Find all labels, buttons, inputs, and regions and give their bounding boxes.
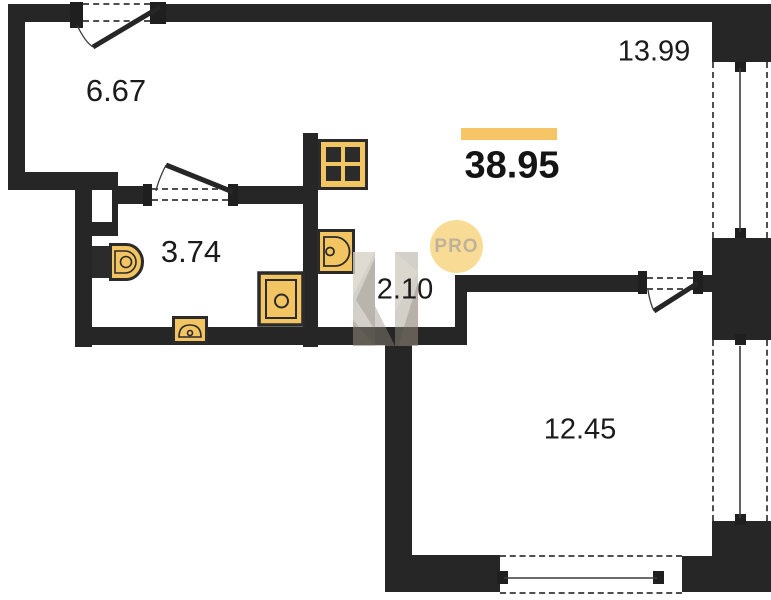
pro-badge: PRO — [430, 220, 483, 273]
bathroom-door-jamb-right — [228, 184, 238, 206]
wall-duct-bottom — [92, 222, 118, 236]
toilet-icon — [109, 243, 145, 281]
window3-end-right — [653, 571, 664, 584]
wall-bedroom-left — [385, 345, 412, 592]
wall-divider-right — [703, 275, 712, 292]
room-area-bathroom: 3.74 — [161, 234, 221, 270]
bedroom-door-threshold-dash — [647, 288, 693, 290]
wall-top-main — [166, 4, 712, 22]
bathroom-door-threshold-dash — [152, 188, 228, 190]
room-area-entry-hall: 6.67 — [86, 73, 146, 109]
wall-bottom-right — [682, 556, 712, 592]
window1-end-top — [735, 62, 746, 72]
kitchen-sink-icon — [317, 229, 355, 274]
wall-block-top-right — [712, 4, 771, 62]
bedroom-door-jamb-right — [693, 271, 703, 294]
room-area-corridor: 2.10 — [377, 274, 433, 307]
wall-bathroom-door-left — [112, 186, 143, 204]
wall-hall-bottom — [8, 172, 118, 190]
wall-kitchen — [303, 133, 318, 347]
window3-end-left — [497, 571, 508, 584]
window1-end-bottom — [735, 228, 746, 238]
wall-left — [8, 4, 25, 190]
wall-block-bottom-left — [412, 555, 500, 592]
entry-door-jamb-right — [150, 2, 166, 24]
wall-block-bottom-corner — [712, 521, 771, 592]
bedroom-door-threshold-dash — [647, 277, 693, 279]
wall-block-mid-right — [712, 238, 771, 340]
shower-tray-icon — [257, 271, 305, 327]
window2-end-top — [735, 334, 746, 345]
room-area-bedroom: 12.45 — [544, 414, 617, 447]
window3-reveal-dash — [500, 592, 682, 594]
room-area-kitchen-living: 13.99 — [618, 36, 691, 69]
bathroom-door-jamb-left — [143, 184, 152, 206]
window1-reveal-dash — [712, 62, 714, 238]
wall-divider-left — [455, 275, 638, 292]
entry-door-threshold-dash — [83, 3, 150, 5]
window2-reveal-dash — [712, 340, 714, 521]
wall-corridor-bottom — [75, 327, 467, 345]
window1-reveal-dash — [766, 62, 768, 238]
total-area-accent-bar — [461, 128, 557, 140]
window3-reveal-dash — [500, 555, 682, 557]
entry-door-swing-icon — [77, 7, 160, 47]
window2-reveal-dash — [766, 340, 768, 521]
floor-plan: PRO 38.95 6.67 13.99 3.74 2.10 12.45 — [0, 0, 771, 600]
wall-bathroom-door-right — [238, 186, 303, 204]
wall-bathroom-left — [75, 190, 92, 347]
stove-icon — [318, 139, 368, 190]
total-area-label: 38.95 — [464, 145, 559, 188]
bathroom-door-threshold-dash — [152, 199, 228, 201]
window2-end-bottom — [735, 514, 746, 525]
bedroom-door-jamb-left — [638, 271, 647, 294]
entry-door-threshold-dash — [83, 20, 150, 22]
washbasin-icon — [172, 316, 208, 344]
pro-badge-label: PRO — [434, 236, 478, 258]
entry-door-jamb-left — [70, 2, 83, 28]
